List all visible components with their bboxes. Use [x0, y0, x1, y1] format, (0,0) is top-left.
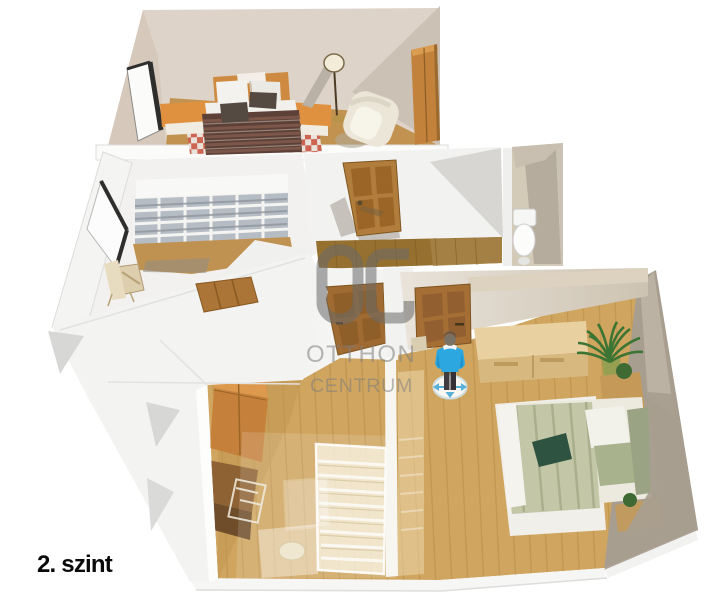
svg-text:OTTHON: OTTHON — [306, 341, 416, 368]
svg-text:CENTRUM: CENTRUM — [310, 375, 413, 397]
